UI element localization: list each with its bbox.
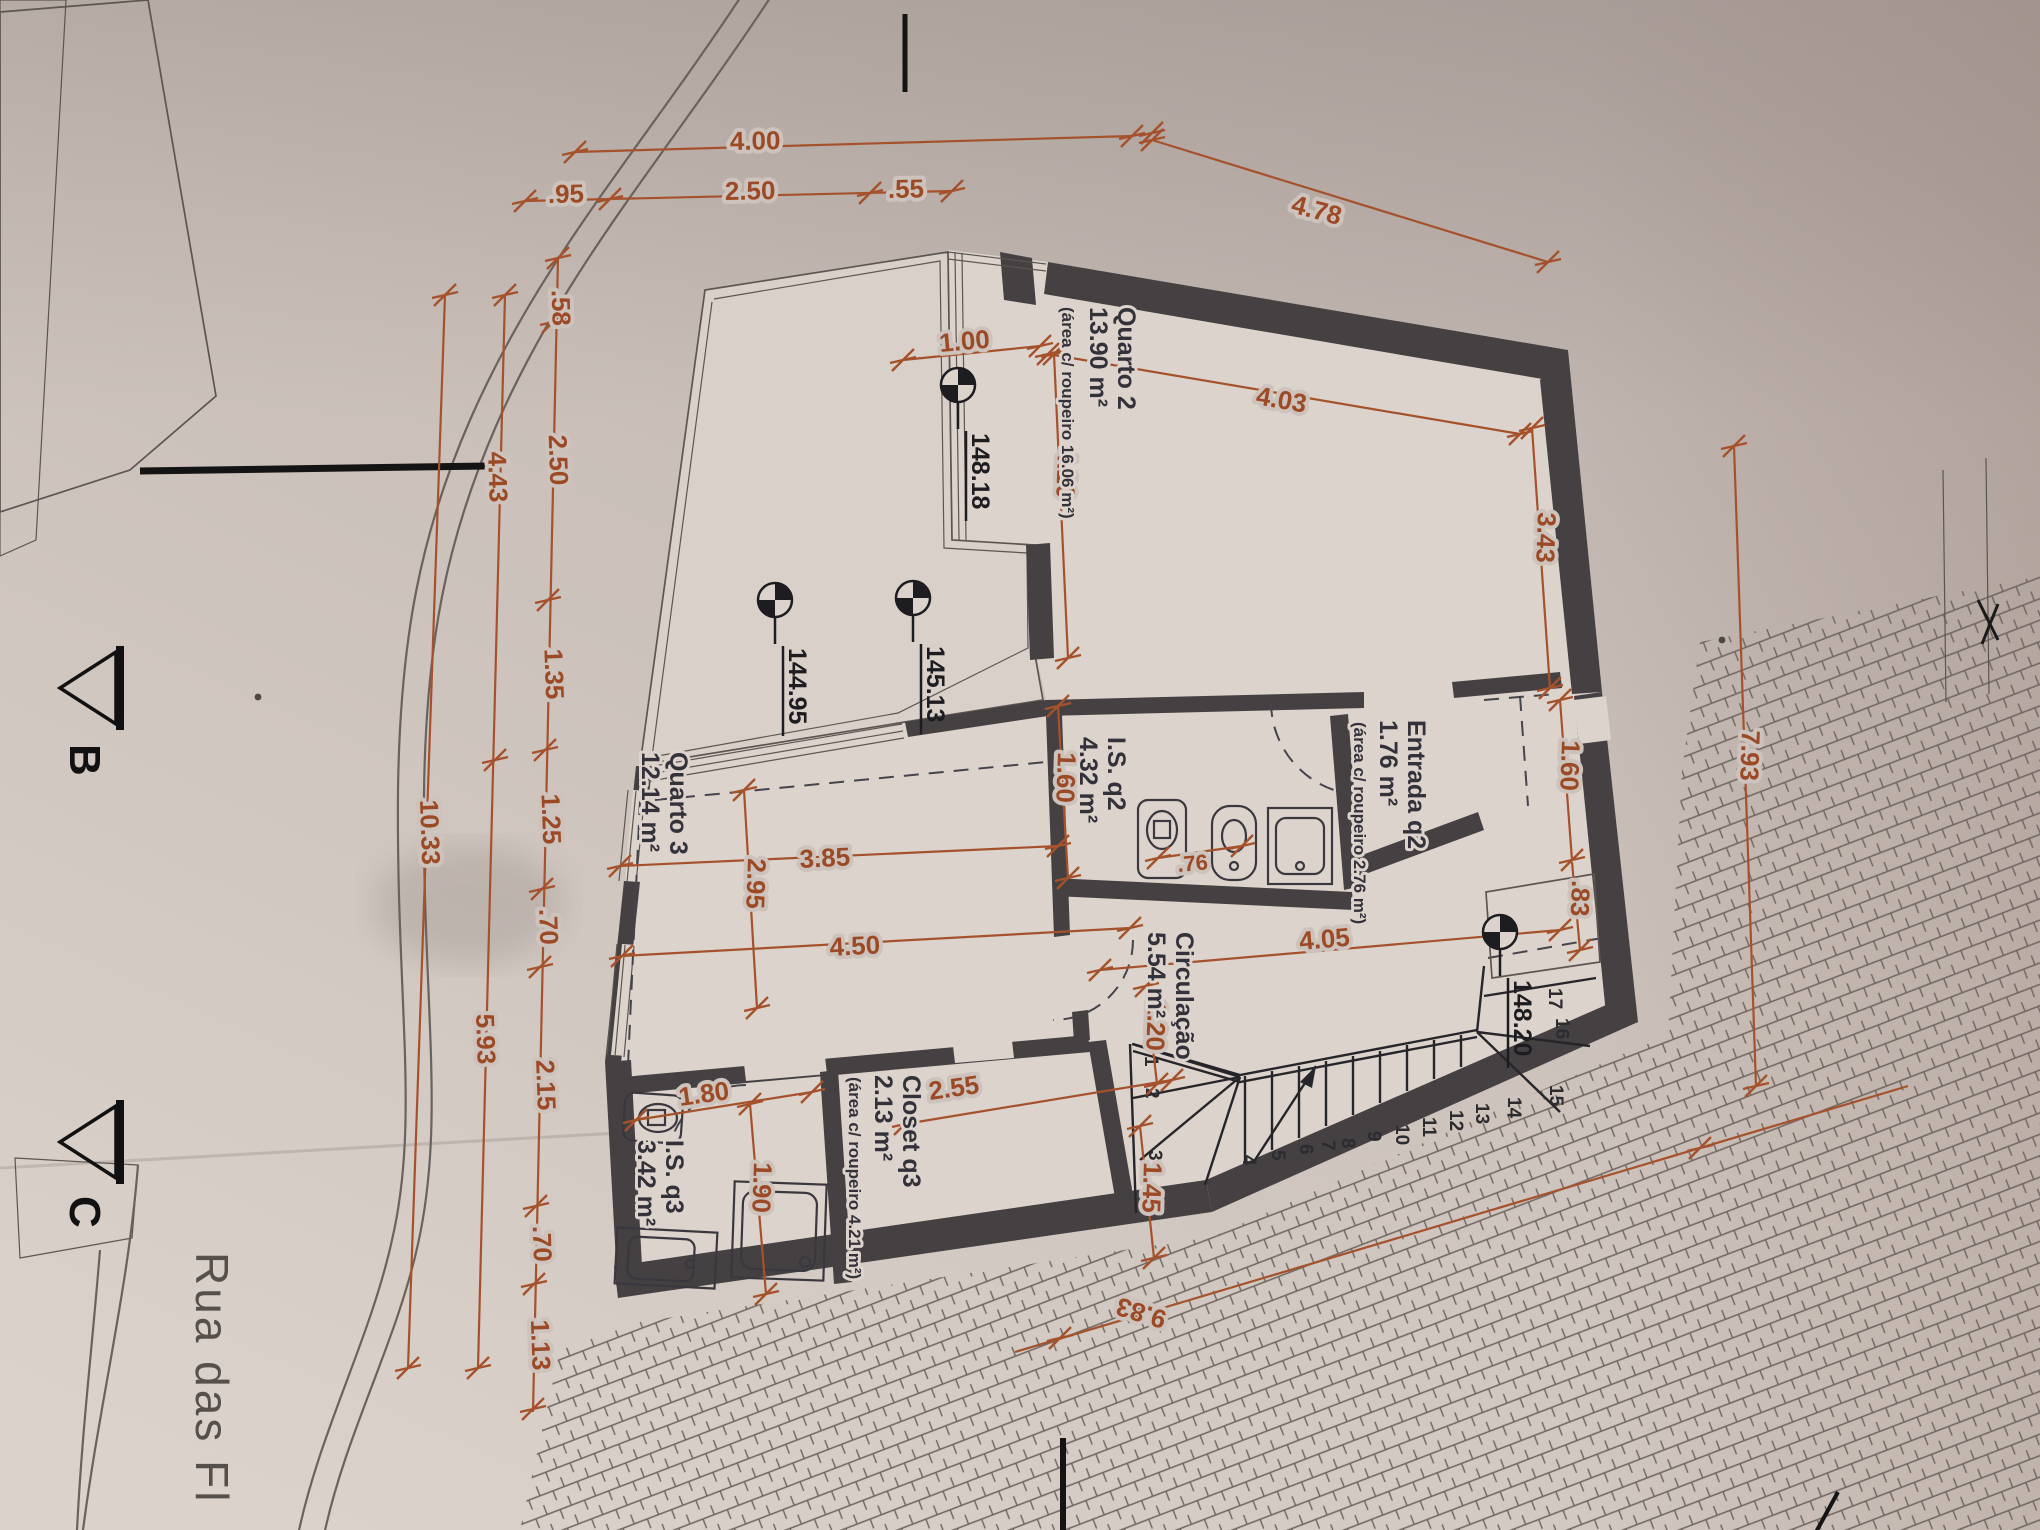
dimension-label: .58	[546, 289, 577, 326]
room-area: 12.14 m²	[636, 752, 664, 852]
dimension-label: 4.50	[829, 929, 881, 962]
dimension-label: 2.50	[543, 434, 575, 486]
stair-number: 1	[1140, 1056, 1161, 1067]
dimension-label: .55	[888, 173, 925, 204]
dimension-label: 2.15	[530, 1059, 562, 1111]
stair-number: 8	[1337, 1138, 1358, 1149]
dimension-label: 1.45	[1136, 1162, 1168, 1214]
dimension-label: 3.43	[1530, 512, 1562, 564]
stair-number: 5	[1267, 1150, 1288, 1161]
dimension-label: 1.90	[746, 1162, 778, 1214]
room-name: I.S. q2	[1102, 737, 1130, 811]
dimension-label: 4.00	[730, 125, 781, 156]
elevation-value: 144.95	[783, 648, 811, 725]
room-area: 4.32 m²	[1074, 737, 1102, 823]
room-area: 3.42 m²	[632, 1140, 660, 1226]
dimension-label: 4.05	[1298, 922, 1351, 956]
stair-number: 10	[1391, 1124, 1412, 1145]
dimension-label: 1.60	[1554, 740, 1586, 792]
stair-number: 16	[1551, 1018, 1572, 1039]
room-name: Quarto 3	[664, 752, 692, 855]
wall-right-notch	[1574, 696, 1611, 744]
dimension-label: 5.93	[470, 1013, 502, 1065]
stair-number: 4	[1238, 1155, 1259, 1166]
room-area: 1.76 m²	[1374, 720, 1402, 806]
dimension-label: .70	[527, 1225, 558, 1262]
stair-number: 6	[1295, 1144, 1316, 1155]
elevation-value: 145.13	[921, 646, 949, 722]
dimension-label: 3.85	[799, 841, 851, 874]
dimension-label: .83	[1565, 880, 1596, 917]
black-mark-left	[140, 466, 488, 471]
room-name: Circulação	[1170, 932, 1198, 1060]
dimension-label: 1.35	[538, 648, 570, 700]
room-label-isq3: I.S. q3 3.42 m²	[632, 1140, 688, 1226]
stair-number: 7	[1317, 1140, 1338, 1151]
dimension-label: 2.95	[740, 858, 772, 910]
dimension-label: .70	[533, 908, 564, 945]
section-label-b: B	[60, 744, 109, 776]
dot-artifact-1	[1719, 637, 1726, 644]
room-area: 2.13 m²	[869, 1075, 897, 1161]
dimension-label: .76	[1176, 849, 1209, 877]
dimension-label: .95	[548, 178, 585, 209]
room-name: Quarto 2	[1112, 307, 1140, 410]
dimension-label: 1.13	[525, 1319, 557, 1371]
floor-plan-photo: 1234567891011121314151617 4.00.952.50.55…	[0, 0, 2040, 1530]
dimension-label: 1.25	[535, 793, 567, 845]
floor-plan-drawing: 1234567891011121314151617 4.00.952.50.55…	[0, 0, 2040, 1530]
elevation-value: 148.18	[966, 433, 994, 510]
stair-number: 9	[1363, 1131, 1384, 1142]
dimension-label: 2.50	[725, 175, 776, 206]
room-label-isq2: I.S. q2 4.32 m²	[1074, 737, 1130, 823]
room-name: Entrada q2	[1402, 720, 1430, 849]
elevation-value: 148.20	[1508, 980, 1536, 1056]
room-label-quarto3: Quarto 3 12.14 m²	[636, 752, 692, 855]
room-area-note: (área c/ roupeiro 2.76 m²)	[1350, 722, 1369, 924]
stair-number: 12	[1445, 1110, 1466, 1131]
stair-number: 14	[1503, 1097, 1524, 1119]
stair-number: 11	[1418, 1117, 1439, 1138]
room-area-note: (área c/ roupeiro 4.21 m²)	[845, 1077, 864, 1279]
dimension-label: 10.33	[414, 799, 446, 865]
room-name: I.S. q3	[660, 1140, 688, 1214]
room-area: 13.90 m²	[1084, 307, 1112, 407]
wall-bay-stub	[1000, 252, 1036, 305]
room-area: 5.54 m²	[1142, 932, 1170, 1018]
room-name: Closet q3	[897, 1075, 925, 1188]
stair-number: 13	[1471, 1103, 1492, 1124]
stair-number: 3	[1144, 1150, 1165, 1161]
room-area-note: (área c/ roupeiro 16.06 m²)	[1058, 307, 1077, 519]
stair-number: 15	[1545, 1085, 1566, 1107]
dot-artifact-2	[255, 694, 262, 701]
dimension-label: 1.00	[938, 324, 991, 358]
wall-upper-left-segment	[1026, 543, 1054, 660]
dimension-label: 7.93	[1734, 730, 1766, 782]
street-name-label: Rua das Fl	[186, 1252, 238, 1504]
dimension-label: 4.43	[482, 451, 514, 503]
section-label-c: C	[60, 1196, 109, 1228]
stair-number: 17	[1544, 988, 1565, 1009]
